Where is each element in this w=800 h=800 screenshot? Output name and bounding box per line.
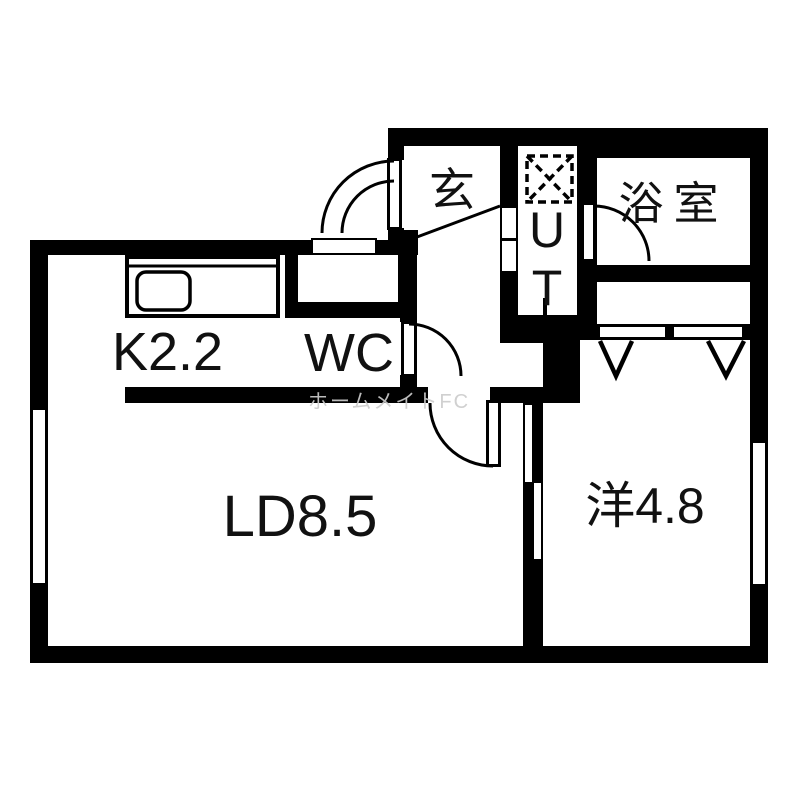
- entrance-door-swing-arc-inner: [342, 181, 394, 233]
- room-label-ut-text: UT: [522, 202, 572, 318]
- watermark-text: ホームメイトFC: [308, 385, 470, 414]
- room-label-bathroom-text: 浴室: [618, 181, 728, 226]
- room-label-genkan: 玄: [404, 150, 500, 230]
- room-label-genkan-text: 玄: [429, 167, 475, 213]
- closet-hanger-icon-right: [708, 341, 744, 376]
- room-label-bathroom: 浴室: [597, 174, 750, 232]
- room-label-western-room-text: 洋4.8: [585, 481, 705, 531]
- room-label-ut: UT: [518, 204, 576, 316]
- room-label-living-dining-text: LD8.5: [223, 488, 378, 546]
- laundry-space-symbol: [527, 156, 572, 202]
- closet-hanger-icon-left: [600, 341, 632, 376]
- room-label-wc: WC: [298, 322, 400, 384]
- room-label-wc-text: WC: [304, 326, 394, 380]
- kitchen-sink: [137, 272, 190, 310]
- floor-plan: 玄 UT 浴室 WC K2.2 LD8.5 洋4.8 ホームメイトFC: [0, 0, 800, 800]
- room-label-living-dining: LD8.5: [150, 480, 450, 554]
- room-label-kitchen: K2.2: [50, 324, 285, 380]
- room-label-kitchen-text: K2.2: [112, 325, 223, 379]
- wc-door-swing-arc: [409, 324, 461, 376]
- room-label-western-room: 洋4.8: [545, 473, 745, 539]
